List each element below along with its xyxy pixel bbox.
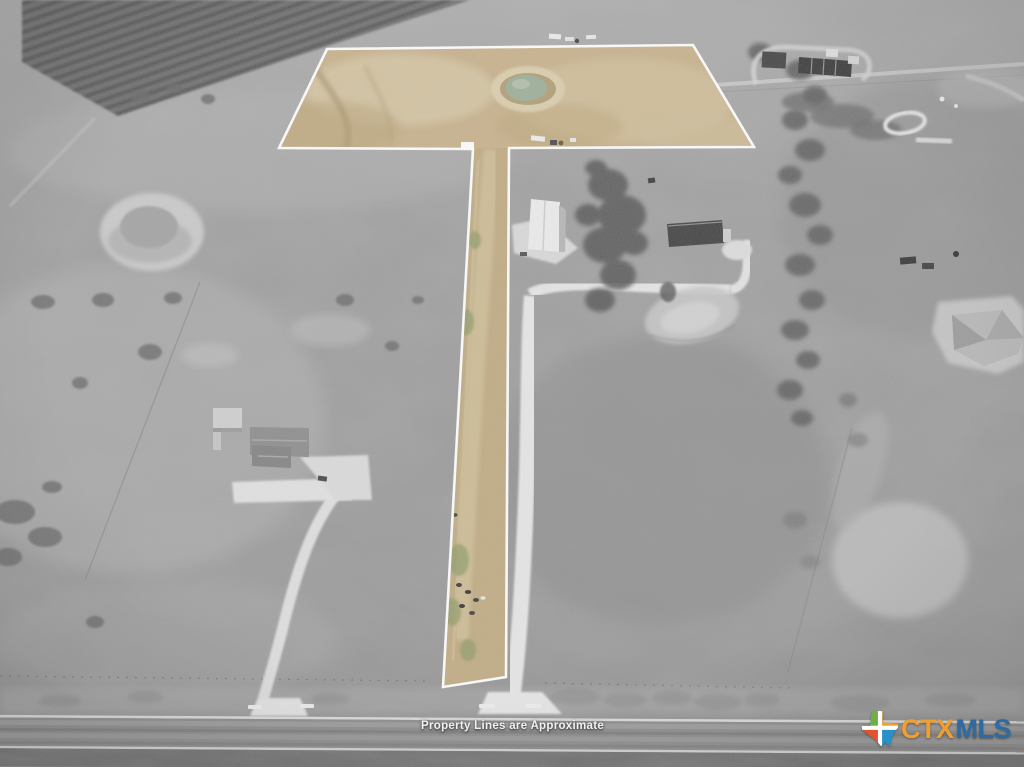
- logo-text-mls: MLS: [956, 716, 1012, 743]
- logo-text-ctx: CTX: [901, 716, 954, 743]
- texas-quadrant-green: [861, 710, 880, 728]
- texas-state-icon: [861, 709, 899, 749]
- property-lines-disclaimer: Property Lines are Approximate: [421, 720, 604, 732]
- aerial-photo: Property Lines are Approximate CTXMLS: [0, 0, 1024, 767]
- ctxmls-logo: CTXMLS: [861, 705, 1011, 753]
- texas-cross-horizontal: [861, 726, 899, 730]
- vignette: [0, 0, 1024, 767]
- aerial-scene: [0, 0, 1024, 767]
- texas-quadrant-orange: [880, 710, 899, 728]
- texas-quadrant-red: [861, 728, 880, 748]
- texas-quadrant-blue: [880, 728, 899, 748]
